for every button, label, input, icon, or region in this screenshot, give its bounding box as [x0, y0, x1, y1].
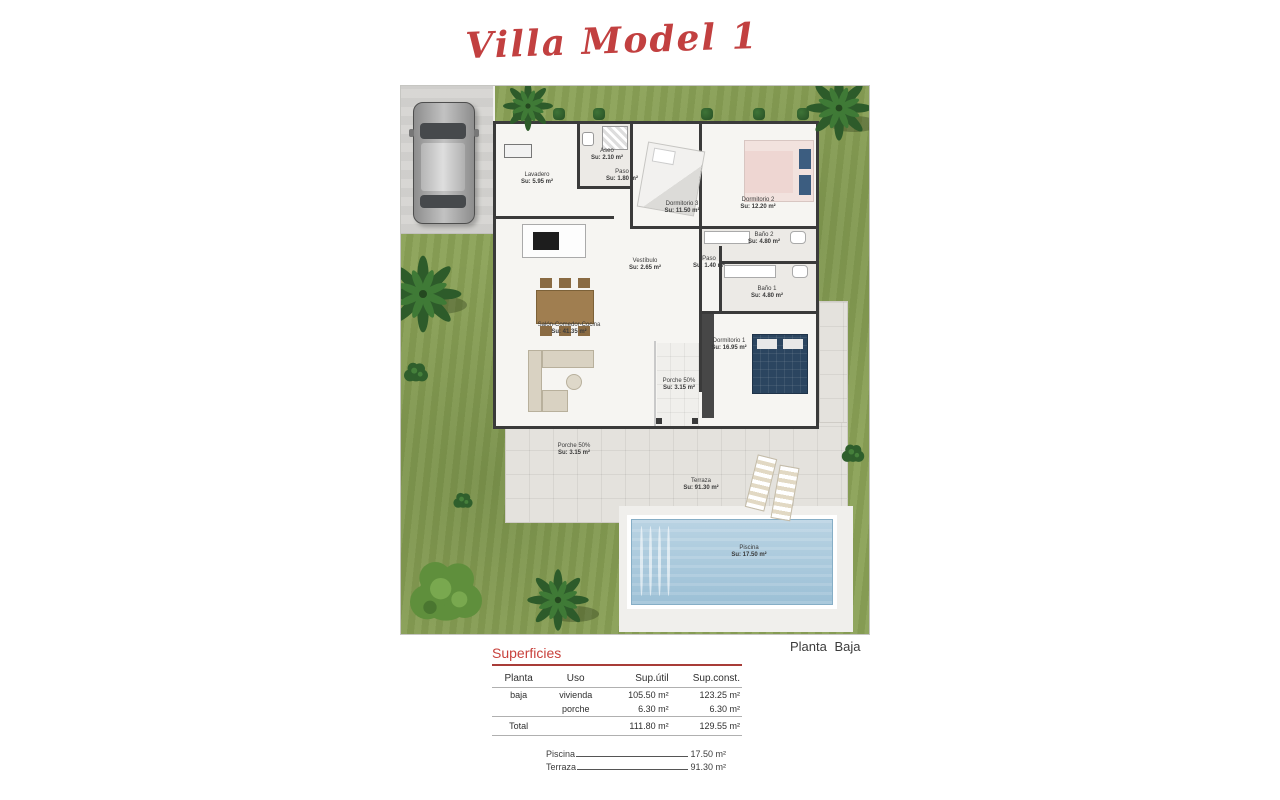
superficies-table: Planta Uso Sup.útil Sup.const. baja vivi…	[492, 670, 742, 736]
table-total-row: Total 111.80 m² 129.55 m²	[492, 717, 742, 736]
swimming-pool	[631, 519, 833, 605]
extras-section: Piscina 17.50 m² Terraza 91.30 m²	[546, 746, 726, 772]
room-label-salon: Salón-Comedor-CocinaSu: 41.35 m²	[538, 322, 601, 336]
pillow	[799, 149, 811, 169]
room-label-paso-top: PasoSu: 1.80 m²	[606, 169, 638, 183]
extra-label: Piscina	[546, 749, 575, 759]
shower	[602, 126, 628, 150]
room-label-paso: PasoSu: 1.40 m²	[693, 256, 725, 270]
bed-dormitorio-1	[752, 334, 808, 394]
side-mirror	[474, 129, 479, 137]
column-header: Sup.útil	[606, 670, 670, 688]
site-plan: LavaderoSu: 5.95 m² AseoSu: 2.10 m² Paso…	[400, 85, 870, 635]
bush-icon	[401, 358, 431, 388]
room-label-bano-1: Baño 1Su: 4.80 m²	[751, 286, 783, 300]
leader-line	[577, 769, 688, 770]
leader-line	[576, 756, 688, 757]
coffee-table	[566, 374, 582, 390]
palm-tree-icon	[805, 85, 870, 142]
rear-window	[420, 195, 466, 208]
table-header-row: Planta Uso Sup.útil Sup.const.	[492, 670, 742, 688]
superficies-heading: Superficies	[492, 645, 742, 666]
column-header: Sup.const.	[671, 670, 742, 688]
wardrobe	[702, 314, 714, 418]
house-floor-plan: LavaderoSu: 5.95 m² AseoSu: 2.10 m² Paso…	[493, 121, 819, 429]
car	[413, 102, 475, 224]
room-label-porche-right: Porche 50%Su: 3.15 m²	[663, 378, 696, 392]
bath1-counter	[724, 265, 776, 278]
cooktop	[533, 232, 559, 250]
side-mirror	[409, 129, 414, 137]
room-label-dormitorio-3: Dormitorio 3Su: 11.50 m²	[664, 201, 699, 215]
bath2-counter	[704, 231, 750, 244]
pillow	[783, 339, 803, 349]
pillow	[652, 148, 676, 166]
page-title: Villa Model 1	[465, 15, 760, 67]
pillow	[799, 175, 811, 195]
extra-value: 91.30 m²	[690, 762, 726, 772]
bed-dormitorio-2	[744, 140, 814, 202]
superficies-section: Superficies Planta Uso Sup.útil Sup.cons…	[492, 645, 742, 736]
dining-table	[536, 290, 594, 324]
washing-machine	[504, 144, 532, 158]
extra-row-terraza: Terraza 91.30 m²	[546, 759, 726, 772]
palm-tree-icon	[400, 254, 463, 334]
floor-label: Planta Baja	[790, 639, 861, 654]
palm-tree-icon	[502, 85, 554, 132]
extra-label: Terraza	[546, 762, 576, 772]
table-row: porche 6.30 m² 6.30 m²	[492, 702, 742, 717]
column-header: Uso	[545, 670, 606, 688]
room-label-bano-2: Baño 2Su: 4.80 m²	[748, 232, 780, 246]
extra-row-piscina: Piscina 17.50 m²	[546, 746, 726, 759]
room-label-piscina: PiscinaSu: 17.50 m²	[731, 545, 766, 559]
room-label-terraza: TerrazaSu: 91.30 m²	[683, 478, 718, 492]
bush-icon	[839, 440, 867, 468]
room-label-porche-left: Porche 50%Su: 3.15 m²	[558, 443, 591, 457]
bush-icon	[451, 489, 475, 513]
pillow	[757, 339, 777, 349]
leafy-tree-icon	[406, 554, 486, 634]
blanket	[745, 151, 793, 193]
aseo-sink	[582, 132, 594, 146]
bath1-toilet	[792, 265, 808, 278]
room-label-dormitorio-1: Dormitorio 1Su: 16.95 m²	[711, 338, 746, 352]
room-label-aseo: AseoSu: 2.10 m²	[591, 148, 623, 162]
plan-sheet: Villa Model 1	[0, 0, 1280, 800]
kitchen-island	[522, 224, 586, 258]
terrace-side-path	[819, 301, 848, 423]
room-label-vestibulo: VestíbuloSu: 2.65 m²	[629, 258, 661, 272]
palm-tree-icon	[526, 568, 590, 632]
extra-value: 17.50 m²	[690, 749, 726, 759]
table-row: baja vivienda 105.50 m² 123.25 m²	[492, 688, 742, 703]
car-roof	[421, 143, 465, 191]
room-label-dormitorio-2: Dormitorio 2Su: 12.20 m²	[740, 197, 775, 211]
column-header: Planta	[492, 670, 545, 688]
room-label-lavadero: LavaderoSu: 5.95 m²	[521, 172, 553, 186]
bath2-toilet	[790, 231, 806, 244]
windshield	[420, 123, 466, 139]
